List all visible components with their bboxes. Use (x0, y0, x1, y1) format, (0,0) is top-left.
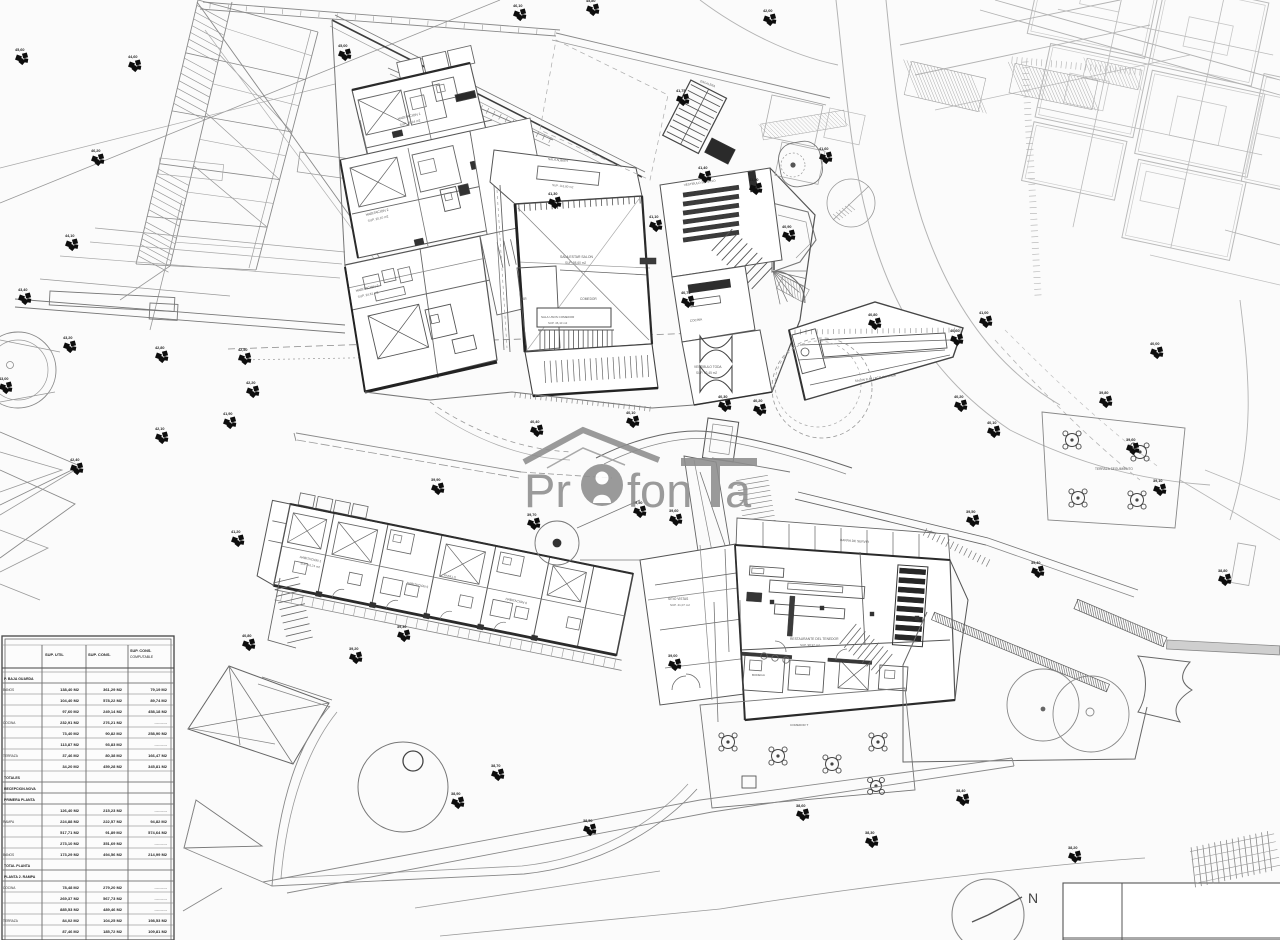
svg-text:578,22 M2: 578,22 M2 (103, 698, 123, 703)
svg-text:----------: ---------- (154, 842, 167, 846)
svg-text:38,30: 38,30 (865, 831, 875, 835)
svg-text:232,91 M2: 232,91 M2 (60, 720, 80, 725)
svg-text:P. BAJA GUARDA: P. BAJA GUARDA (4, 677, 34, 681)
svg-text:113,87 M2: 113,87 M2 (60, 742, 79, 747)
svg-text:42,20: 42,20 (246, 381, 256, 385)
svg-text:41,75: 41,75 (676, 89, 686, 93)
svg-text:38,20: 38,20 (1068, 846, 1078, 850)
svg-text:258,90 M2: 258,90 M2 (148, 731, 168, 736)
svg-text:38,60: 38,60 (796, 804, 806, 808)
svg-text:249,14 M2: 249,14 M2 (103, 709, 123, 714)
svg-text:273,10 M2: 273,10 M2 (60, 841, 80, 846)
svg-text:TOTAL PLANTA: TOTAL PLANTA (4, 864, 31, 868)
svg-text:COCINA: COCINA (3, 886, 16, 890)
svg-text:459,28 M2: 459,28 M2 (103, 764, 123, 769)
svg-text:SUP. CONS.: SUP. CONS. (130, 649, 151, 653)
svg-text:39,00: 39,00 (668, 654, 678, 658)
svg-text:345,81 M2: 345,81 M2 (148, 764, 168, 769)
svg-text:361,29 M2: 361,29 M2 (103, 687, 123, 692)
svg-text:BANOS: BANOS (3, 688, 14, 692)
svg-text:46,10: 46,10 (513, 4, 523, 8)
svg-text:39,10: 39,10 (1153, 479, 1163, 483)
svg-text:BAR: BAR (520, 297, 527, 301)
svg-text:41,20: 41,20 (749, 178, 759, 182)
svg-text:----------: ---------- (154, 886, 167, 890)
svg-text:45,80: 45,80 (586, 0, 596, 3)
svg-text:91,89 M2: 91,89 M2 (105, 830, 122, 835)
svg-text:Pr: Pr (524, 464, 571, 517)
svg-text:39,20: 39,20 (349, 647, 359, 651)
svg-text:87,46 M2: 87,46 M2 (62, 929, 79, 934)
svg-text:40,80: 40,80 (242, 634, 252, 638)
svg-text:279,20 M2: 279,20 M2 (103, 885, 123, 890)
svg-text:42,40: 42,40 (70, 458, 80, 462)
svg-text:COMEDOR T: COMEDOR T (790, 723, 808, 727)
svg-text:44,60: 44,60 (128, 55, 138, 59)
svg-text:SUP. 98,97 m2: SUP. 98,97 m2 (800, 643, 820, 647)
svg-text:41,20: 41,20 (231, 530, 241, 534)
svg-text:SUP. 46,10 m2: SUP. 46,10 m2 (548, 321, 568, 325)
svg-text:43,00: 43,00 (0, 377, 9, 381)
svg-text:269,37 M2: 269,37 M2 (60, 896, 80, 901)
svg-text:567,73 M2: 567,73 M2 (103, 896, 123, 901)
svg-text:SALA ESTAR SALON: SALA ESTAR SALON (560, 255, 593, 259)
svg-text:39,40: 39,40 (1031, 561, 1041, 565)
svg-text:93,83 M2: 93,83 M2 (105, 742, 122, 747)
svg-text:38,80: 38,80 (1218, 569, 1228, 573)
svg-text:42,50: 42,50 (238, 348, 248, 352)
svg-text:104,40 M2: 104,40 M2 (60, 698, 80, 703)
svg-text:489,46 M2: 489,46 M2 (103, 907, 123, 912)
svg-text:40,10: 40,10 (626, 411, 636, 415)
svg-text:198,53 M2: 198,53 M2 (148, 918, 168, 923)
svg-text:38,90: 38,90 (451, 792, 461, 796)
svg-text:37,46 M2: 37,46 M2 (62, 753, 79, 758)
svg-text:351,69 M2: 351,69 M2 (103, 841, 123, 846)
svg-text:SUP. CONS.: SUP. CONS. (88, 652, 111, 657)
svg-text:885,53 M2: 885,53 M2 (60, 907, 80, 912)
svg-text:574,64 M2: 574,64 M2 (148, 830, 168, 835)
svg-text:104,25 M2: 104,25 M2 (103, 918, 123, 923)
svg-text:40,20: 40,20 (753, 399, 763, 403)
svg-text:44,10: 44,10 (65, 234, 75, 238)
svg-text:80,38 M2: 80,38 M2 (105, 753, 122, 758)
svg-text:79,19 M2: 79,19 M2 (150, 687, 167, 692)
svg-text:RAMPA: RAMPA (3, 820, 15, 824)
svg-text:TERRAZA: TERRAZA (3, 754, 19, 758)
svg-text:----------: ---------- (154, 897, 167, 901)
svg-text:494,56 M2: 494,56 M2 (103, 852, 123, 857)
svg-text:40,00: 40,00 (1150, 342, 1160, 346)
svg-text:40,70: 40,70 (681, 291, 691, 295)
svg-text:40,10: 40,10 (987, 421, 997, 425)
svg-text:45,60: 45,60 (15, 48, 25, 52)
svg-text:BODEGA: BODEGA (752, 673, 765, 677)
svg-text:222,57 M2: 222,57 M2 (103, 819, 123, 824)
svg-text:39,60: 39,60 (1126, 438, 1136, 442)
svg-text:COMPUTABLE: COMPUTABLE (130, 655, 154, 659)
svg-text:40,80: 40,80 (868, 313, 878, 317)
svg-text:PRIMERA PLANTA: PRIMERA PLANTA (4, 798, 35, 802)
svg-text:43,40: 43,40 (18, 288, 28, 292)
svg-text:109,81 M2: 109,81 M2 (148, 929, 168, 934)
svg-text:94,82 M2: 94,82 M2 (150, 819, 167, 824)
svg-text:41,60: 41,60 (819, 147, 829, 151)
svg-text:34,20 M2: 34,20 M2 (62, 764, 79, 769)
svg-text:138,40 M2: 138,40 M2 (60, 687, 80, 692)
svg-text:TERRAZA: TERRAZA (3, 919, 19, 923)
svg-text:fon: fon (627, 464, 692, 517)
svg-text:----------: ---------- (154, 721, 167, 725)
svg-text:40,30: 40,30 (718, 395, 728, 399)
svg-text:40,60: 40,60 (950, 329, 960, 333)
svg-text:SUP. UTIL: SUP. UTIL (45, 652, 64, 657)
svg-text:RECEPCION-NOVA: RECEPCION-NOVA (4, 787, 36, 791)
svg-text:215,23 M2: 215,23 M2 (103, 808, 123, 813)
svg-text:----------: ---------- (154, 743, 167, 747)
svg-text:PLANTA 2. RAMPA: PLANTA 2. RAMPA (4, 875, 36, 879)
svg-text:97,60 M2: 97,60 M2 (62, 709, 79, 714)
svg-text:38,70: 38,70 (491, 764, 501, 768)
svg-text:TOTALES: TOTALES (4, 776, 21, 780)
svg-text:RESTAURANTE DEL TENEDOR: RESTAURANTE DEL TENEDOR (790, 637, 839, 641)
svg-text:41,90: 41,90 (223, 412, 233, 416)
svg-text:SITIO VISTAS: SITIO VISTAS (668, 597, 688, 601)
svg-text:COMEDOR: COMEDOR (580, 297, 597, 301)
svg-text:38,50: 38,50 (583, 819, 593, 823)
svg-text:276,21 M2: 276,21 M2 (103, 720, 123, 725)
svg-text:SUP. 41,07 m2: SUP. 41,07 m2 (670, 603, 690, 607)
svg-text:224,88 M2: 224,88 M2 (60, 819, 80, 824)
svg-text:39,30: 39,30 (397, 625, 407, 629)
svg-text:45,00: 45,00 (338, 44, 348, 48)
svg-text:78,48 M2: 78,48 M2 (62, 885, 79, 890)
svg-text:84,02 M2: 84,02 M2 (62, 918, 79, 923)
svg-text:SUP. 98,60 m2: SUP. 98,60 m2 (565, 261, 586, 265)
svg-text:40,20: 40,20 (954, 395, 964, 399)
svg-text:173,29 M2: 173,29 M2 (60, 852, 80, 857)
svg-text:73,40 M2: 73,40 M2 (62, 731, 79, 736)
svg-text:TERRAZA SEGUIMIENTO: TERRAZA SEGUIMIENTO (1095, 467, 1133, 471)
svg-text:40,90: 40,90 (782, 225, 792, 229)
svg-text:a: a (725, 464, 752, 517)
svg-text:42,10: 42,10 (155, 427, 165, 431)
svg-text:----------: ---------- (154, 908, 167, 912)
svg-text:SALA USOS COMEDOR: SALA USOS COMEDOR (541, 315, 575, 319)
svg-text:41,30: 41,30 (548, 192, 558, 196)
svg-text:41,10: 41,10 (649, 215, 659, 219)
svg-text:39,80: 39,80 (1099, 391, 1109, 395)
svg-text:42,80: 42,80 (155, 346, 165, 350)
svg-text:90,82 M2: 90,82 M2 (105, 731, 122, 736)
svg-text:166,47 M2: 166,47 M2 (148, 753, 168, 758)
svg-text:458,18 M2: 458,18 M2 (148, 709, 168, 714)
svg-text:39,90: 39,90 (431, 478, 441, 482)
svg-text:42,00: 42,00 (763, 9, 773, 13)
svg-text:89,74 M2: 89,74 M2 (150, 698, 167, 703)
svg-text:N: N (1028, 890, 1038, 906)
svg-text:126,40 M2: 126,40 M2 (60, 808, 80, 813)
svg-text:39,50: 39,50 (966, 510, 976, 514)
svg-text:214,99 M2: 214,99 M2 (148, 852, 168, 857)
svg-text:40,40: 40,40 (530, 420, 540, 424)
svg-text:46,20: 46,20 (91, 149, 101, 153)
svg-text:41,40: 41,40 (698, 166, 708, 170)
svg-text:BANOS: BANOS (3, 853, 14, 857)
svg-text:----------: ---------- (154, 809, 167, 813)
svg-text:517,71 M2: 517,71 M2 (60, 830, 80, 835)
svg-text:COCINA: COCINA (3, 721, 16, 725)
svg-text:43,20: 43,20 (63, 336, 73, 340)
svg-text:VESTIBULO TODA: VESTIBULO TODA (694, 365, 722, 369)
svg-text:38,40: 38,40 (956, 789, 966, 793)
svg-text:41,00: 41,00 (979, 311, 989, 315)
svg-text:185,72 M2: 185,72 M2 (103, 929, 123, 934)
